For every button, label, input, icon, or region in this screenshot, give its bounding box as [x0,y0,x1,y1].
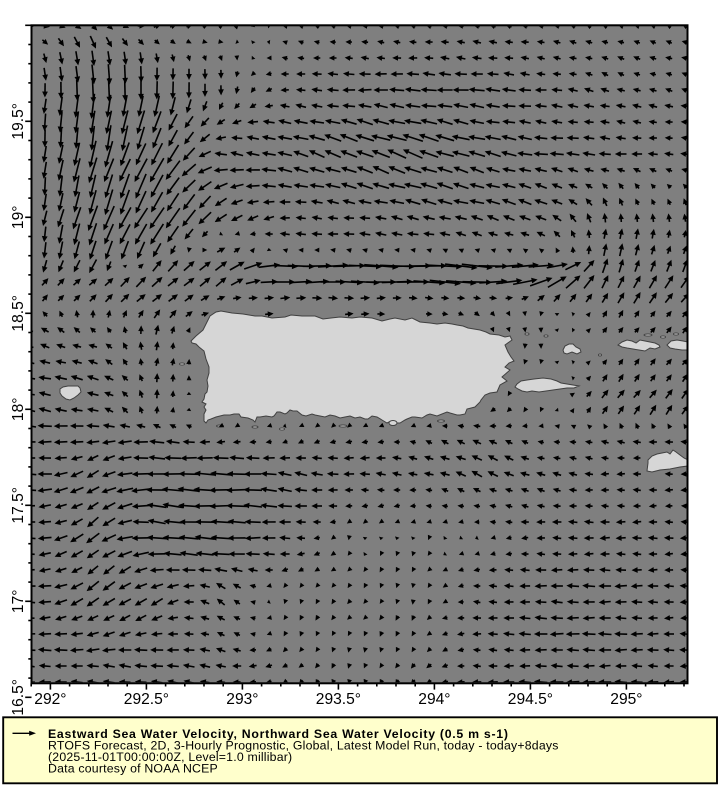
svg-text:16.5°: 16.5° [10,679,27,716]
svg-text:18.5°: 18.5° [10,295,27,332]
svg-text:17.5°: 17.5° [10,487,27,524]
svg-text:18°: 18° [10,398,27,422]
svg-text:293.5°: 293.5° [316,691,361,708]
svg-text:292°: 292° [34,691,66,708]
svg-text:295°: 295° [610,691,642,708]
svg-text:294°: 294° [418,691,450,708]
svg-text:19.5°: 19.5° [10,103,27,140]
svg-text:Data courtesy of NOAA NCEP: Data courtesy of NOAA NCEP [48,762,218,776]
svg-text:17°: 17° [10,590,27,614]
svg-text:294.5°: 294.5° [508,691,553,708]
svg-text:292.5°: 292.5° [124,691,169,708]
svg-text:19°: 19° [10,206,27,230]
svg-text:293°: 293° [226,691,258,708]
